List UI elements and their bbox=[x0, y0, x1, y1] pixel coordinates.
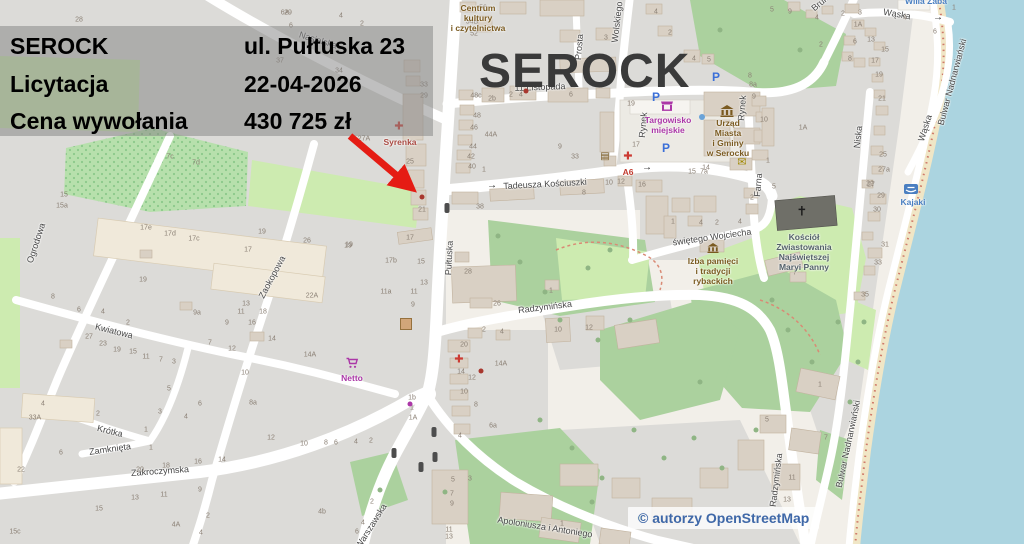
osm-attribution-link[interactable]: © autorzy OpenStreetMap bbox=[628, 507, 819, 529]
location-arrow bbox=[0, 0, 1024, 544]
map-screenshot[interactable]: NasielskaPułtuskaWolskiegoProstaRynekRyn… bbox=[0, 0, 1024, 544]
